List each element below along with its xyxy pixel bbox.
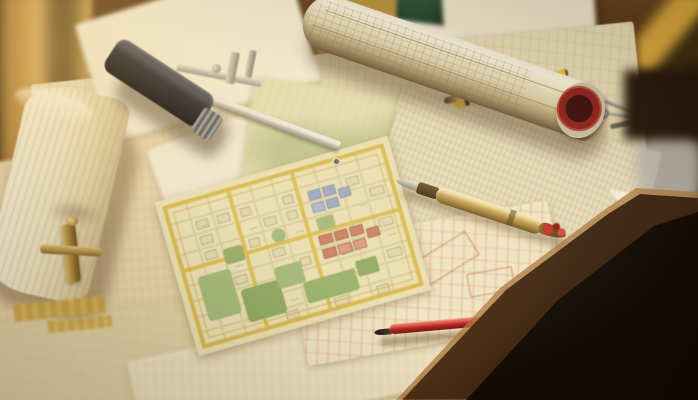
wax-bits (542, 222, 568, 238)
background-dark-topright (624, 70, 698, 140)
yellow-object-blur (636, 0, 698, 72)
brass-cross-tool-knob (66, 216, 78, 226)
desk-photo (0, 0, 698, 400)
caliper-screw (212, 64, 221, 73)
